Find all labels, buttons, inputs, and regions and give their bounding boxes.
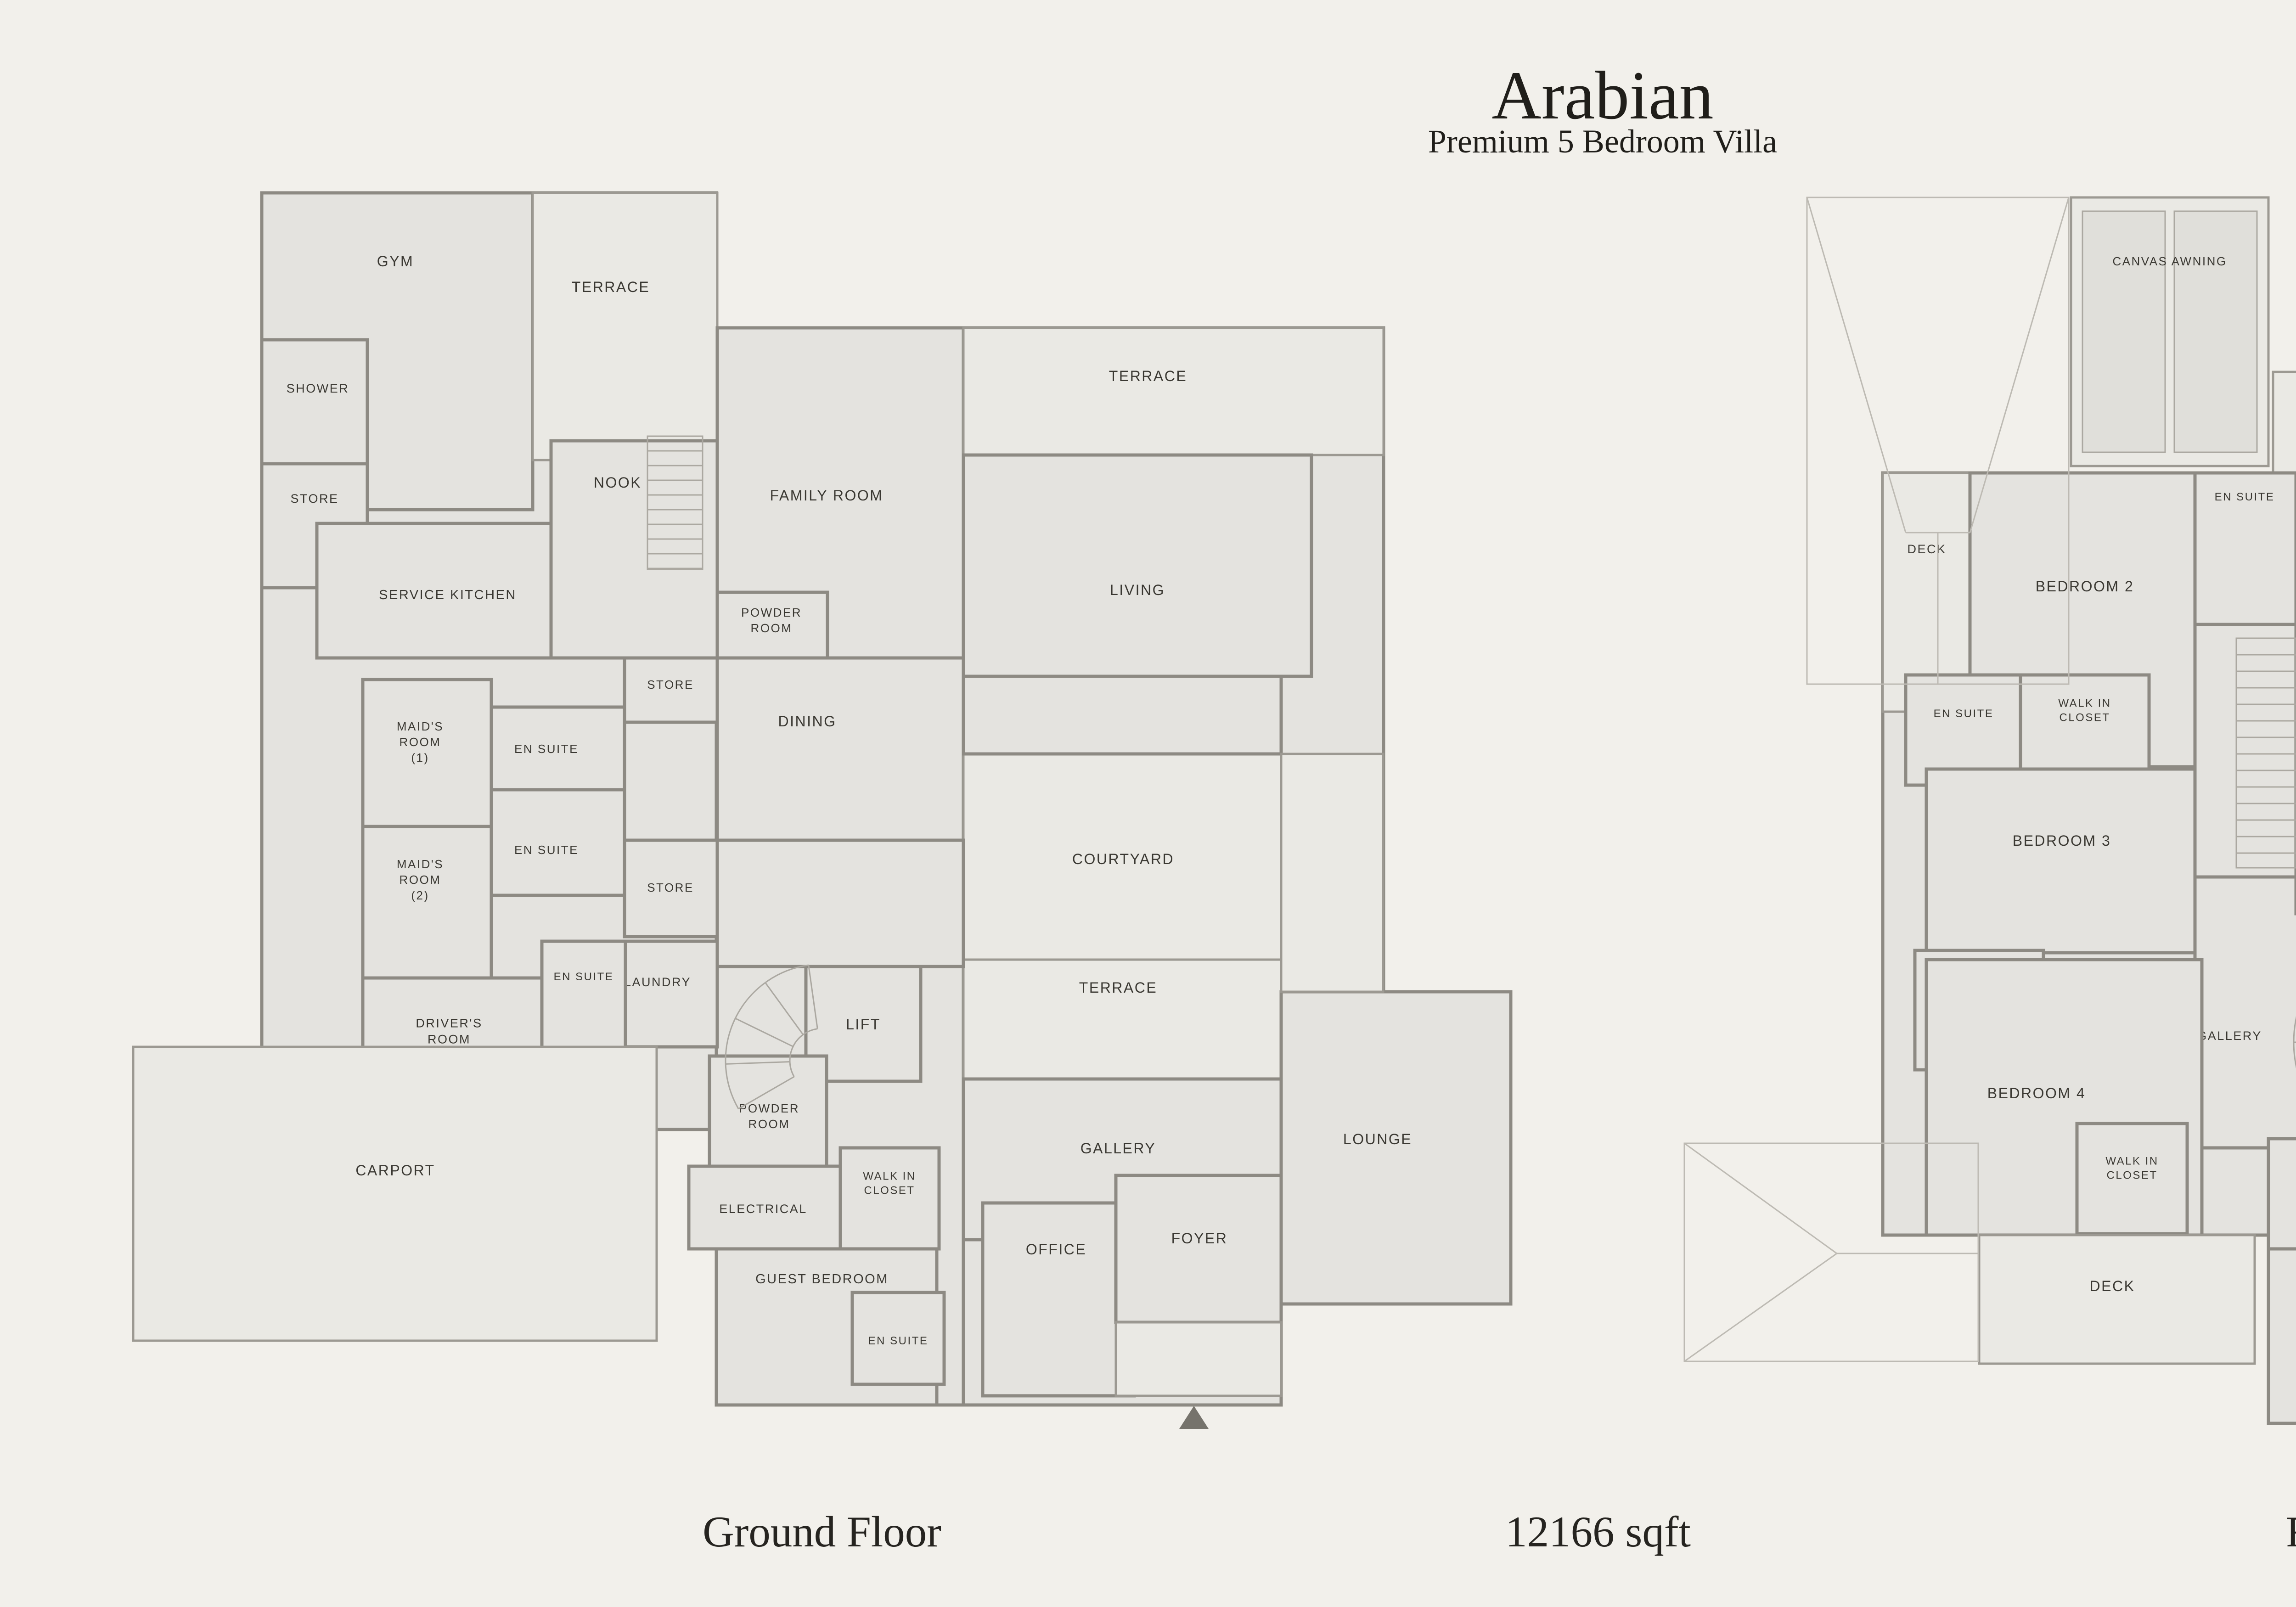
room-label: EN SUITE bbox=[514, 843, 579, 857]
room-carport: CARPORT bbox=[133, 1047, 657, 1341]
room-label: TERRACE bbox=[1109, 368, 1187, 384]
room-label: BEDROOM 4 bbox=[1987, 1085, 2086, 1101]
room-shape bbox=[840, 1148, 939, 1249]
room-label: SERVICE KITCHEN bbox=[379, 588, 517, 602]
room-nook: NOOK bbox=[551, 441, 717, 658]
room-label: GUEST BEDROOM bbox=[755, 1272, 889, 1287]
room-label: EN SUITE bbox=[1934, 708, 1994, 720]
room-terrace: TERRACE bbox=[963, 960, 1281, 1079]
room-nanny-s-room: NANNY'SROOM bbox=[2268, 1249, 2296, 1423]
room-shape bbox=[1116, 1175, 1281, 1322]
room-terrace: TERRACE bbox=[533, 193, 717, 460]
room-label: GYM bbox=[377, 253, 414, 270]
room-office: OFFICE bbox=[983, 1203, 1134, 1396]
room-shape bbox=[963, 455, 1311, 676]
room-courtyard: COURTYARD bbox=[963, 754, 1281, 960]
room-lounge: LOUNGE bbox=[1281, 992, 1511, 1304]
room-en-suite: EN SUITE bbox=[491, 707, 625, 790]
room-maid-s-room-2: MAID'SROOM(2) bbox=[363, 826, 491, 978]
room-label: GALLERY bbox=[1080, 1140, 1156, 1157]
room-shape bbox=[963, 960, 1281, 1079]
room-label: COURTYARD bbox=[1072, 851, 1174, 867]
entrance-marker-icon bbox=[1179, 1406, 1209, 1429]
room-shape bbox=[363, 826, 491, 978]
room-label: STORE bbox=[290, 492, 338, 506]
room-store: STORE bbox=[625, 840, 717, 937]
room-shape bbox=[983, 1203, 1134, 1396]
room-label: STORE bbox=[647, 881, 694, 894]
room-shape bbox=[1281, 754, 1383, 992]
room-label: LIFT bbox=[846, 1016, 881, 1033]
building-mass bbox=[2195, 877, 2296, 1148]
room-canvas-awning: CANVAS AWNING bbox=[2071, 197, 2268, 466]
awning-panel bbox=[2174, 211, 2257, 452]
room-label: SHOWER bbox=[287, 382, 349, 395]
room-label: DECK bbox=[2090, 1278, 2135, 1294]
room-label: EN SUITE bbox=[554, 971, 614, 983]
room-label: STORE bbox=[647, 678, 694, 691]
room-label: FAMILY ROOM bbox=[770, 487, 884, 504]
room-label: BEDROOM 2 bbox=[2036, 578, 2134, 595]
first-floor-plan: CANVAS AWNINGDECKTRELLISDECKBEDROOM 2EN … bbox=[1883, 197, 2296, 1423]
room-hall bbox=[717, 840, 963, 966]
room-shape bbox=[533, 193, 717, 460]
room-en-suite: EN SUITE bbox=[852, 1292, 944, 1384]
room-label: ELECTRICAL bbox=[719, 1202, 807, 1216]
room-powder-room: POWDERROOM bbox=[717, 592, 827, 658]
room-hall bbox=[1116, 1322, 1281, 1396]
room-dining: DINING bbox=[717, 658, 963, 840]
ground-floor-caption: Ground Floor bbox=[703, 1507, 941, 1556]
room-shape bbox=[491, 790, 625, 895]
room-walk-in-closet: WALK INCLOSET bbox=[840, 1148, 939, 1249]
room-living: LIVING bbox=[963, 455, 1311, 676]
room-en-suite: EN SUITE bbox=[491, 790, 625, 895]
room-shape bbox=[717, 840, 963, 966]
room-shape bbox=[1116, 1322, 1281, 1396]
room-foyer: FOYER bbox=[1116, 1175, 1281, 1322]
room-deck: DECK bbox=[1979, 1235, 2255, 1364]
header: Arabian Premium 5 Bedroom Villa bbox=[1428, 57, 1777, 160]
room-shape bbox=[1281, 992, 1511, 1304]
room-shape bbox=[963, 328, 1384, 455]
room-shape bbox=[717, 658, 963, 840]
room-service-kitchen: SERVICE KITCHEN bbox=[317, 523, 551, 658]
room-label: LAUNDRY bbox=[624, 975, 691, 989]
room-en-suite: EN SUITE bbox=[2195, 473, 2296, 624]
room-shower: SHOWER bbox=[262, 340, 367, 464]
room-label: CARPORT bbox=[355, 1162, 435, 1179]
room-electrical: ELECTRICAL bbox=[689, 1166, 840, 1249]
awning-panel bbox=[2082, 211, 2165, 452]
room-maid-s-room-1: MAID'SROOM(1) bbox=[363, 680, 491, 826]
floor-plan-canvas: Arabian Premium 5 Bedroom Villa GYMTERRA… bbox=[0, 0, 2296, 1607]
room-label: LOUNGE bbox=[1343, 1131, 1412, 1147]
room-shape bbox=[1979, 1235, 2255, 1364]
room-label: CANVAS AWNING bbox=[2112, 254, 2227, 268]
room-label: BEDROOM 3 bbox=[2013, 832, 2111, 849]
room-label: OFFICE bbox=[1026, 1241, 1086, 1258]
room-shape bbox=[551, 441, 717, 658]
ground-floor-plan: GYMTERRACESHOWERSTORENOOKSERVICE KITCHEN… bbox=[133, 193, 1511, 1405]
room-label: EN SUITE bbox=[2215, 491, 2275, 503]
room-shape bbox=[1926, 769, 2195, 953]
room-shape bbox=[262, 340, 367, 464]
footer: Ground Floor 12166 sqft First Floor bbox=[703, 1507, 2296, 1556]
room-label: DECK bbox=[1907, 542, 1946, 556]
room-store: STORE bbox=[625, 658, 717, 722]
page-subtitle: Premium 5 Bedroom Villa bbox=[1428, 123, 1777, 160]
room-walk-in-closet: WALK INCLOSET bbox=[2077, 1124, 2187, 1234]
room-label: TERRACE bbox=[1079, 979, 1157, 996]
room-label: DINING bbox=[778, 713, 837, 730]
room-label: FOYER bbox=[1171, 1230, 1228, 1247]
page-title: Arabian bbox=[1491, 57, 1713, 134]
room-shape bbox=[2268, 1249, 2296, 1423]
room-label: LIVING bbox=[1110, 582, 1165, 598]
area-caption: 12166 sqft bbox=[1505, 1507, 1691, 1556]
room-label: EN SUITE bbox=[868, 1335, 929, 1347]
room-powder-room: POWDERROOM bbox=[709, 1056, 827, 1166]
room-shape bbox=[133, 1047, 657, 1341]
room-gallery: GALLERY bbox=[2197, 1029, 2262, 1043]
room-label: EN SUITE bbox=[514, 742, 579, 756]
room-label: GALLERY bbox=[2197, 1029, 2262, 1043]
room-hall bbox=[963, 676, 1281, 754]
room-bedroom-3: BEDROOM 3 bbox=[1926, 769, 2195, 953]
room-label: NOOK bbox=[594, 474, 642, 491]
room-terrace: TERRACE bbox=[963, 328, 1384, 455]
room-shape bbox=[963, 676, 1281, 754]
room-label: TERRACE bbox=[572, 279, 650, 295]
first-floor-caption: First Floor bbox=[2286, 1507, 2296, 1556]
room-hall bbox=[1281, 754, 1383, 992]
